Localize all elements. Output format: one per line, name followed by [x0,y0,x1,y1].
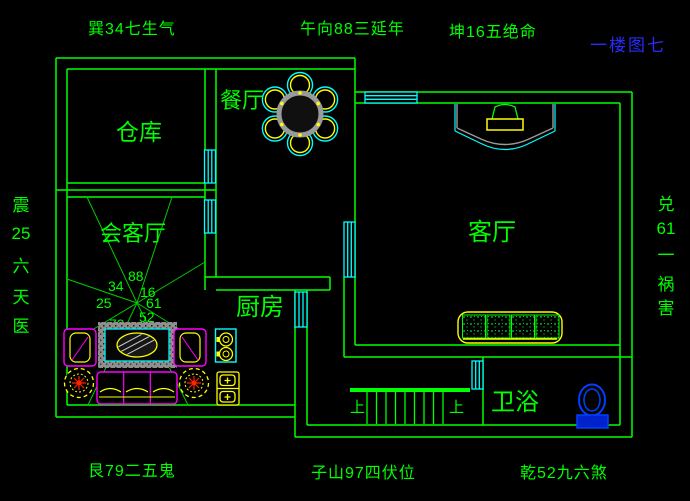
svg-text:25: 25 [12,224,31,243]
side-table-left [65,369,94,398]
tv [487,105,523,131]
window-storage-wall [205,150,216,183]
svg-text:祸: 祸 [658,275,675,294]
living-sofa [458,312,562,343]
stair-label-right: 上 [449,399,464,416]
fan-number-top: 88 [128,268,144,284]
window-livingroom-left-wall [344,222,355,277]
annotation-bottom-zishan: 子山97四伏位 [311,464,416,482]
room-label-storage: 仓库 [116,119,162,145]
svg-text:61: 61 [657,219,676,238]
dining-table [262,73,337,156]
annotation-top-kun: 坤16五绝命 [449,23,537,41]
window-reception-wall [205,200,216,233]
annotation-left-vertical: 震 25 六 天 医 [12,196,31,336]
svg-text:一: 一 [658,246,675,265]
svg-text:医: 医 [13,317,30,336]
annotation-bottom-qian: 乾52九六煞 [520,464,608,482]
armchair-right [174,329,206,366]
fan-number-left: 25 [96,295,112,311]
side-table-right [180,369,209,398]
room-label-living: 客厅 [468,219,516,246]
room-label-kitchen: 厨房 [236,294,284,321]
svg-text:震: 震 [13,196,30,215]
svg-text:天: 天 [13,288,30,307]
svg-text:害: 害 [658,299,675,318]
fan-number-top-left: 34 [108,278,124,294]
floorplan-drawing: 88 34 16 25 61 79 52 [0,0,690,501]
annotation-right-vertical: 兑 61 一 祸 害 [657,195,676,318]
stair-label-left: 上 [350,399,365,416]
window-livingroom-top-wall [365,92,417,103]
room-label-bathroom: 卫浴 [491,389,539,416]
annotation-top-wuxiang: 午向88三延年 [300,20,405,38]
svg-text:六: 六 [13,257,30,276]
floor-title: 一楼图七 [590,36,666,55]
room-label-dining: 餐厅 [220,88,264,113]
armchair-left [64,329,96,366]
cad-floorplan-viewport: 88 34 16 25 61 79 52 [0,0,690,501]
svg-text:兑: 兑 [658,195,675,214]
stove [216,329,237,362]
toilet [577,385,608,429]
sink [217,372,239,405]
room-label-reception: 会客厅 [100,221,166,246]
window-kitchen-wall [295,292,307,327]
dining-table-top [279,93,321,135]
rug [98,322,177,368]
sofa [97,372,177,404]
annotation-bottom-gen: 艮79二五鬼 [88,462,176,480]
annotation-top-xun: 巽34七生气 [88,20,176,38]
bathroom-door [472,361,483,389]
